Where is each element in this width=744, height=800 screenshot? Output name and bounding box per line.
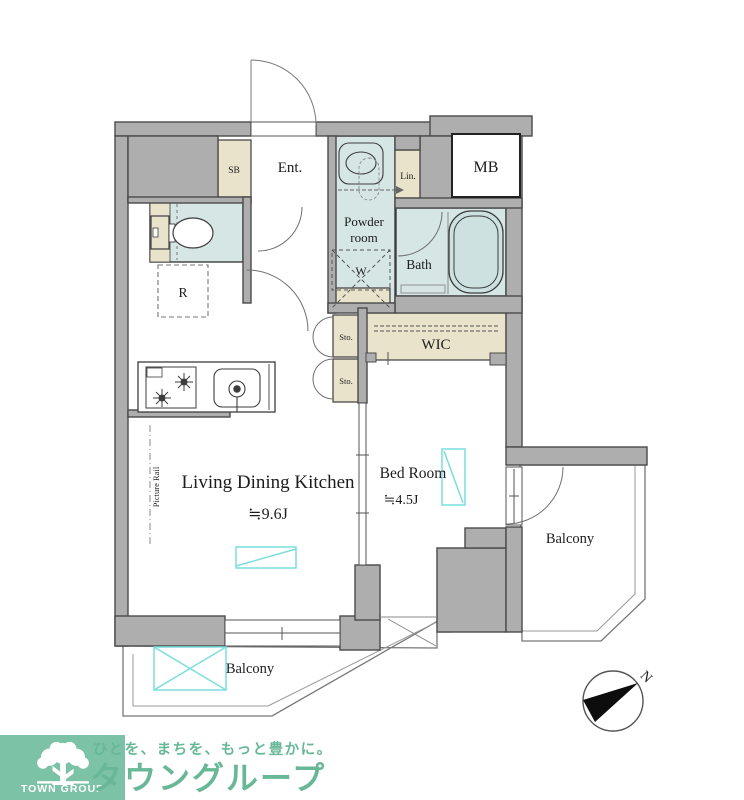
balcony-right-label: Balcony: [546, 531, 595, 547]
sto-upper-label: Sto.: [339, 332, 352, 342]
fridge-label: R: [178, 285, 187, 300]
mb-label: MB: [474, 159, 499, 176]
picture-rail-label: Picture Rail: [151, 466, 161, 507]
powder-room-label-1: Powder: [344, 214, 384, 229]
company-name: タウングループ: [90, 753, 326, 799]
compass-north-label: N: [637, 668, 655, 686]
floor-plan: Picture Rail Ent. SB Powder room Lin. MB…: [0, 0, 744, 800]
floorplan-page: Picture Rail Ent. SB Powder room Lin. MB…: [0, 0, 744, 800]
sto-lower-label: Sto.: [339, 376, 352, 386]
balcony-bottom-label: Balcony: [226, 661, 275, 677]
lin-label: Lin.: [400, 172, 416, 182]
compass-icon: N: [583, 668, 655, 731]
bedroom-area-label: ≒4.5J: [384, 493, 419, 508]
powder-room-label-2: room: [350, 230, 377, 245]
brand-footer: TOWN GROUP ひとを、まちを、もっと豊かに。 タウングループ: [0, 731, 744, 800]
sb-label: SB: [228, 166, 240, 176]
washer-label: W: [355, 264, 367, 278]
wic-label: WIC: [421, 337, 450, 353]
bedroom-label: Bed Room: [380, 465, 447, 482]
ldk-area-label: ≒9.6J: [248, 506, 288, 523]
ldk-label: Living Dining Kitchen: [181, 472, 355, 493]
bath-label: Bath: [406, 257, 432, 272]
balcony-right: [520, 465, 645, 641]
ent-label: Ent.: [278, 160, 303, 176]
